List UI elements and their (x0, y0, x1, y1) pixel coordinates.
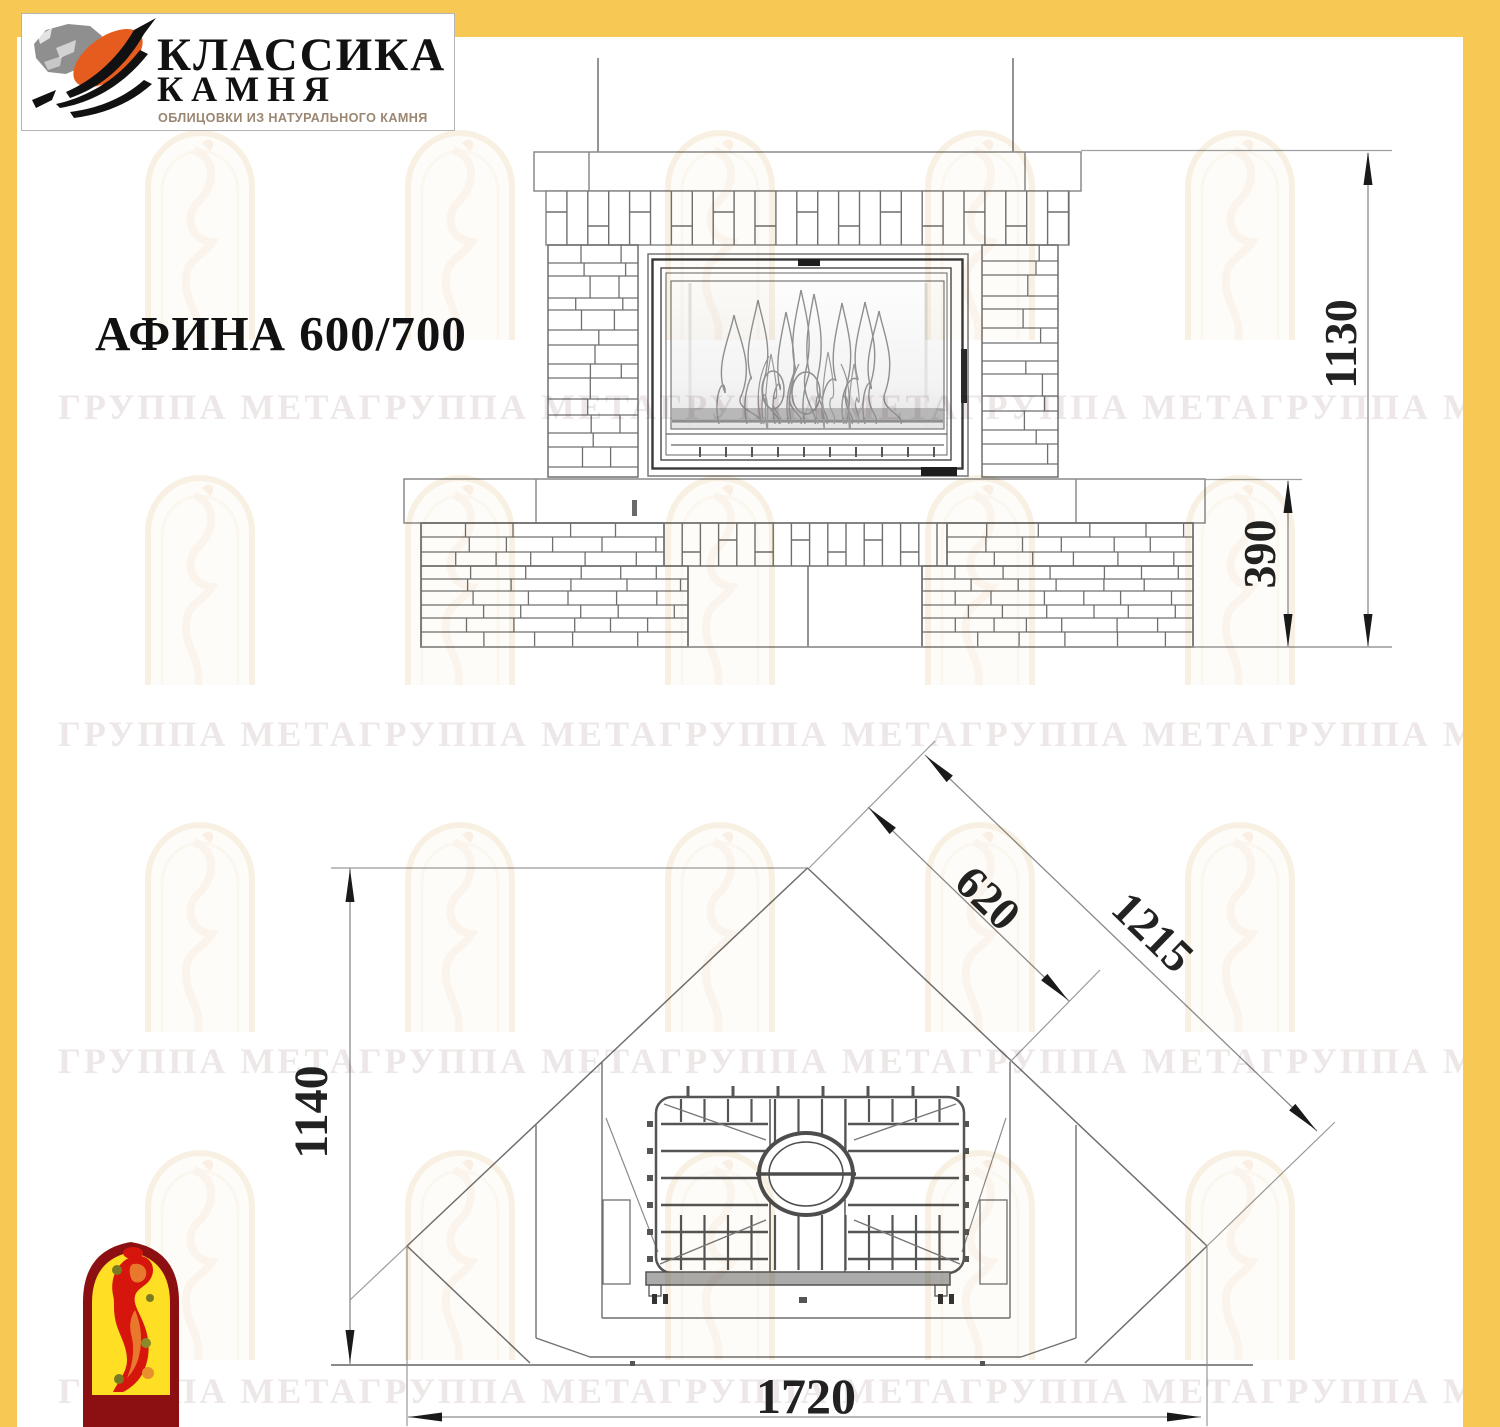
svg-text:КАМНЯ: КАМНЯ (157, 69, 337, 109)
svg-text:ОБЛИЦОВКИ ИЗ НАТУРАЛЬНОГО КАМН: ОБЛИЦОВКИ ИЗ НАТУРАЛЬНОГО КАМНЯ (158, 111, 428, 125)
svg-text:ГРУППА МЕТАГРУППА МЕТАГРУППА М: ГРУППА МЕТАГРУППА МЕТАГРУППА МЕТАГРУППА … (58, 714, 1500, 754)
svg-text:ГРУППА МЕТАГРУППА МЕТАГРУППА М: ГРУППА МЕТАГРУППА МЕТАГРУППА МЕТАГРУППА … (58, 1041, 1500, 1081)
svg-text:ГРУППА МЕТАГРУППА МЕТАГРУППА М: ГРУППА МЕТАГРУППА МЕТАГРУППА МЕТАГРУППА … (58, 387, 1500, 427)
svg-text:ГРУППА МЕТАГРУППА МЕТАГРУППА М: ГРУППА МЕТАГРУППА МЕТАГРУППА МЕТАГРУППА … (58, 1371, 1500, 1411)
